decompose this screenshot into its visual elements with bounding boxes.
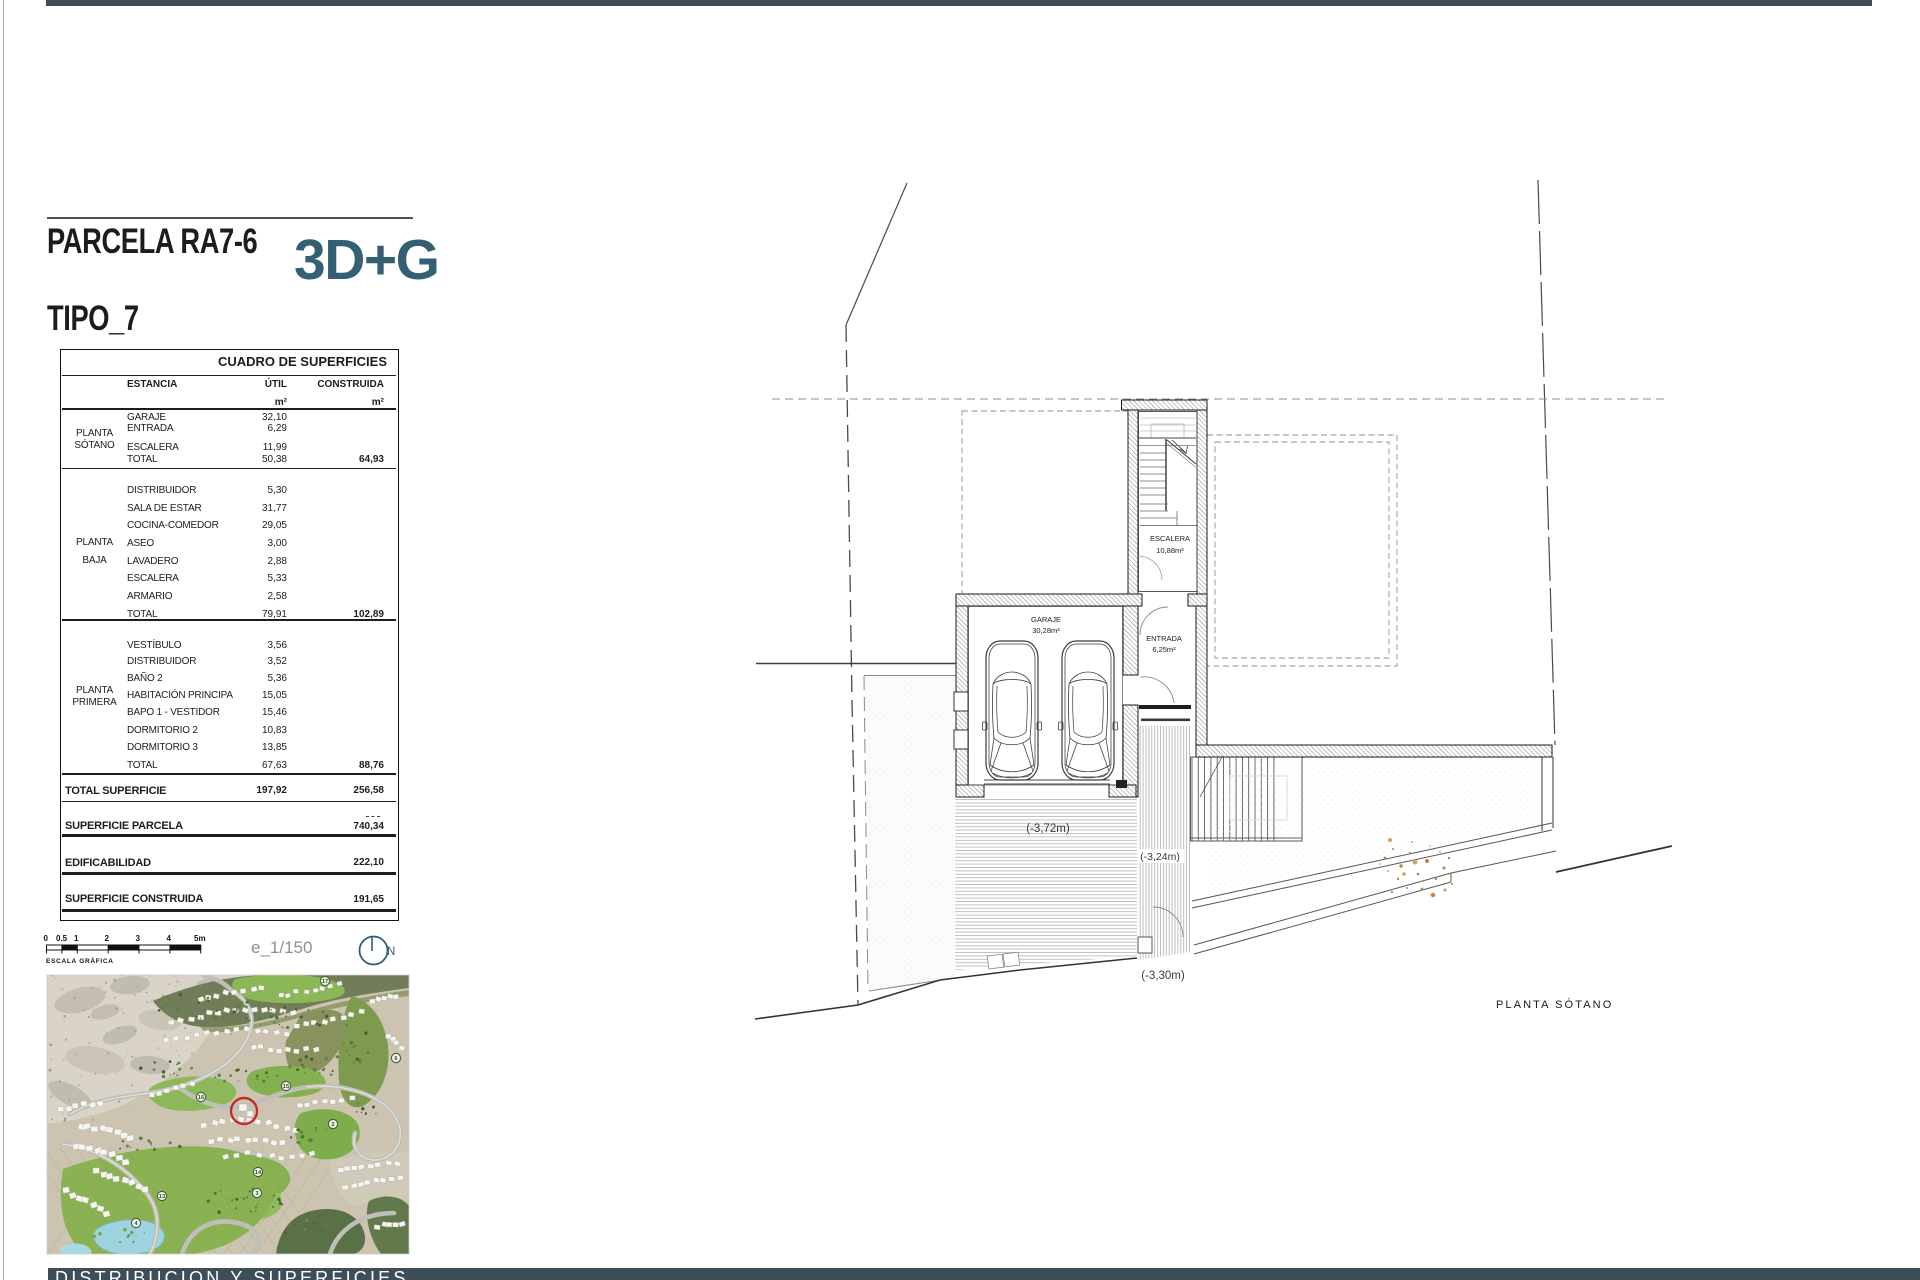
svg-text:ESCALA GRÁFICA: ESCALA GRÁFICA	[46, 956, 114, 965]
svg-text:6,25m²: 6,25m²	[1152, 645, 1176, 654]
svg-text:14: 14	[255, 1170, 262, 1176]
svg-text:3: 3	[136, 934, 141, 943]
svg-text:e_1/150: e_1/150	[251, 938, 312, 957]
svg-text:ENTRADA: ENTRADA	[1146, 634, 1182, 643]
svg-text:5m: 5m	[194, 934, 206, 943]
svg-text:4: 4	[167, 934, 172, 943]
svg-text:ESCALERA: ESCALERA	[1150, 534, 1190, 543]
svg-text:1: 1	[74, 934, 79, 943]
svg-text:N: N	[387, 946, 395, 958]
svg-text:(-3,30m): (-3,30m)	[1141, 970, 1185, 982]
svg-text:17: 17	[322, 979, 328, 985]
svg-text:2: 2	[331, 1122, 334, 1128]
svg-text:(-3,72m): (-3,72m)	[1026, 823, 1070, 835]
svg-text:GARAJE: GARAJE	[1031, 615, 1061, 624]
svg-text:10,88m²: 10,88m²	[1156, 546, 1184, 555]
svg-text:30,28m²: 30,28m²	[1032, 626, 1060, 635]
svg-text:0.5: 0.5	[56, 934, 68, 943]
svg-text:0: 0	[44, 934, 49, 943]
svg-text:15: 15	[283, 1084, 290, 1090]
svg-text:(-3,24m): (-3,24m)	[1140, 851, 1180, 863]
svg-text:2: 2	[105, 934, 110, 943]
svg-text:16: 16	[198, 1095, 205, 1101]
svg-text:PLANTA SÓTANO: PLANTA SÓTANO	[1496, 998, 1613, 1011]
svg-text:13: 13	[159, 1194, 166, 1200]
